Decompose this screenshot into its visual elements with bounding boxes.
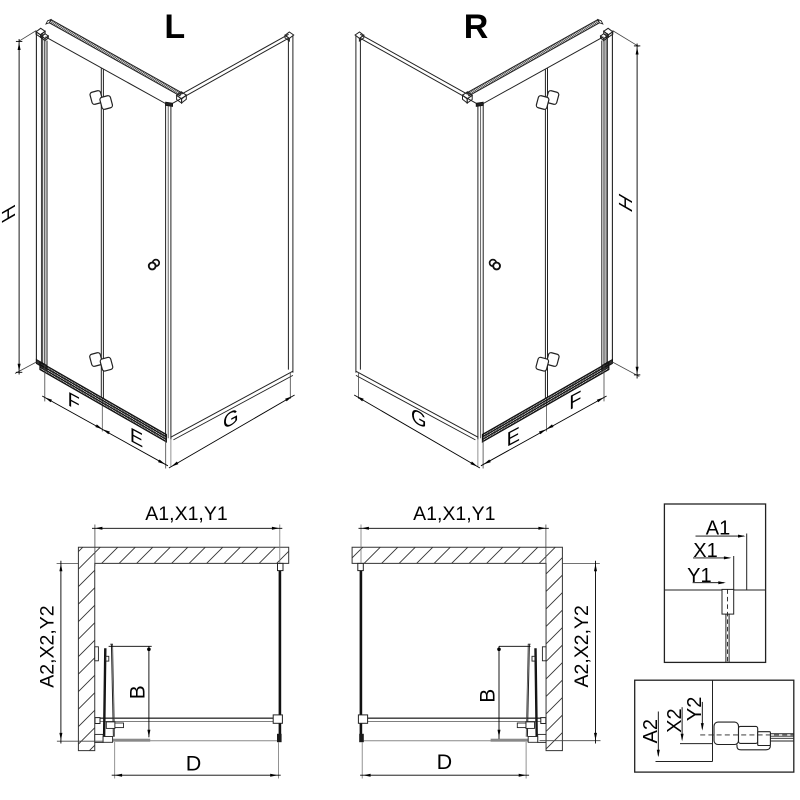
svg-text:B: B [477,689,500,703]
svg-text:D: D [437,750,453,774]
svg-text:Y1: Y1 [687,565,711,587]
svg-text:B: B [127,685,150,699]
svg-text:A1,X1,Y1: A1,X1,Y1 [413,503,495,525]
svg-text:A1: A1 [706,517,730,539]
svg-text:D: D [186,752,202,776]
svg-text:X1: X1 [693,540,717,562]
svg-text:A2,X2,Y2: A2,X2,Y2 [571,605,593,687]
svg-text:X2: X2 [664,708,686,732]
svg-text:A2,X2,Y2: A2,X2,Y2 [37,605,59,687]
svg-text:R: R [464,8,489,46]
svg-text:Y2: Y2 [684,697,706,721]
svg-text:A2: A2 [640,719,662,743]
svg-text:A1,X1,Y1: A1,X1,Y1 [145,503,227,525]
svg-text:L: L [164,8,185,46]
